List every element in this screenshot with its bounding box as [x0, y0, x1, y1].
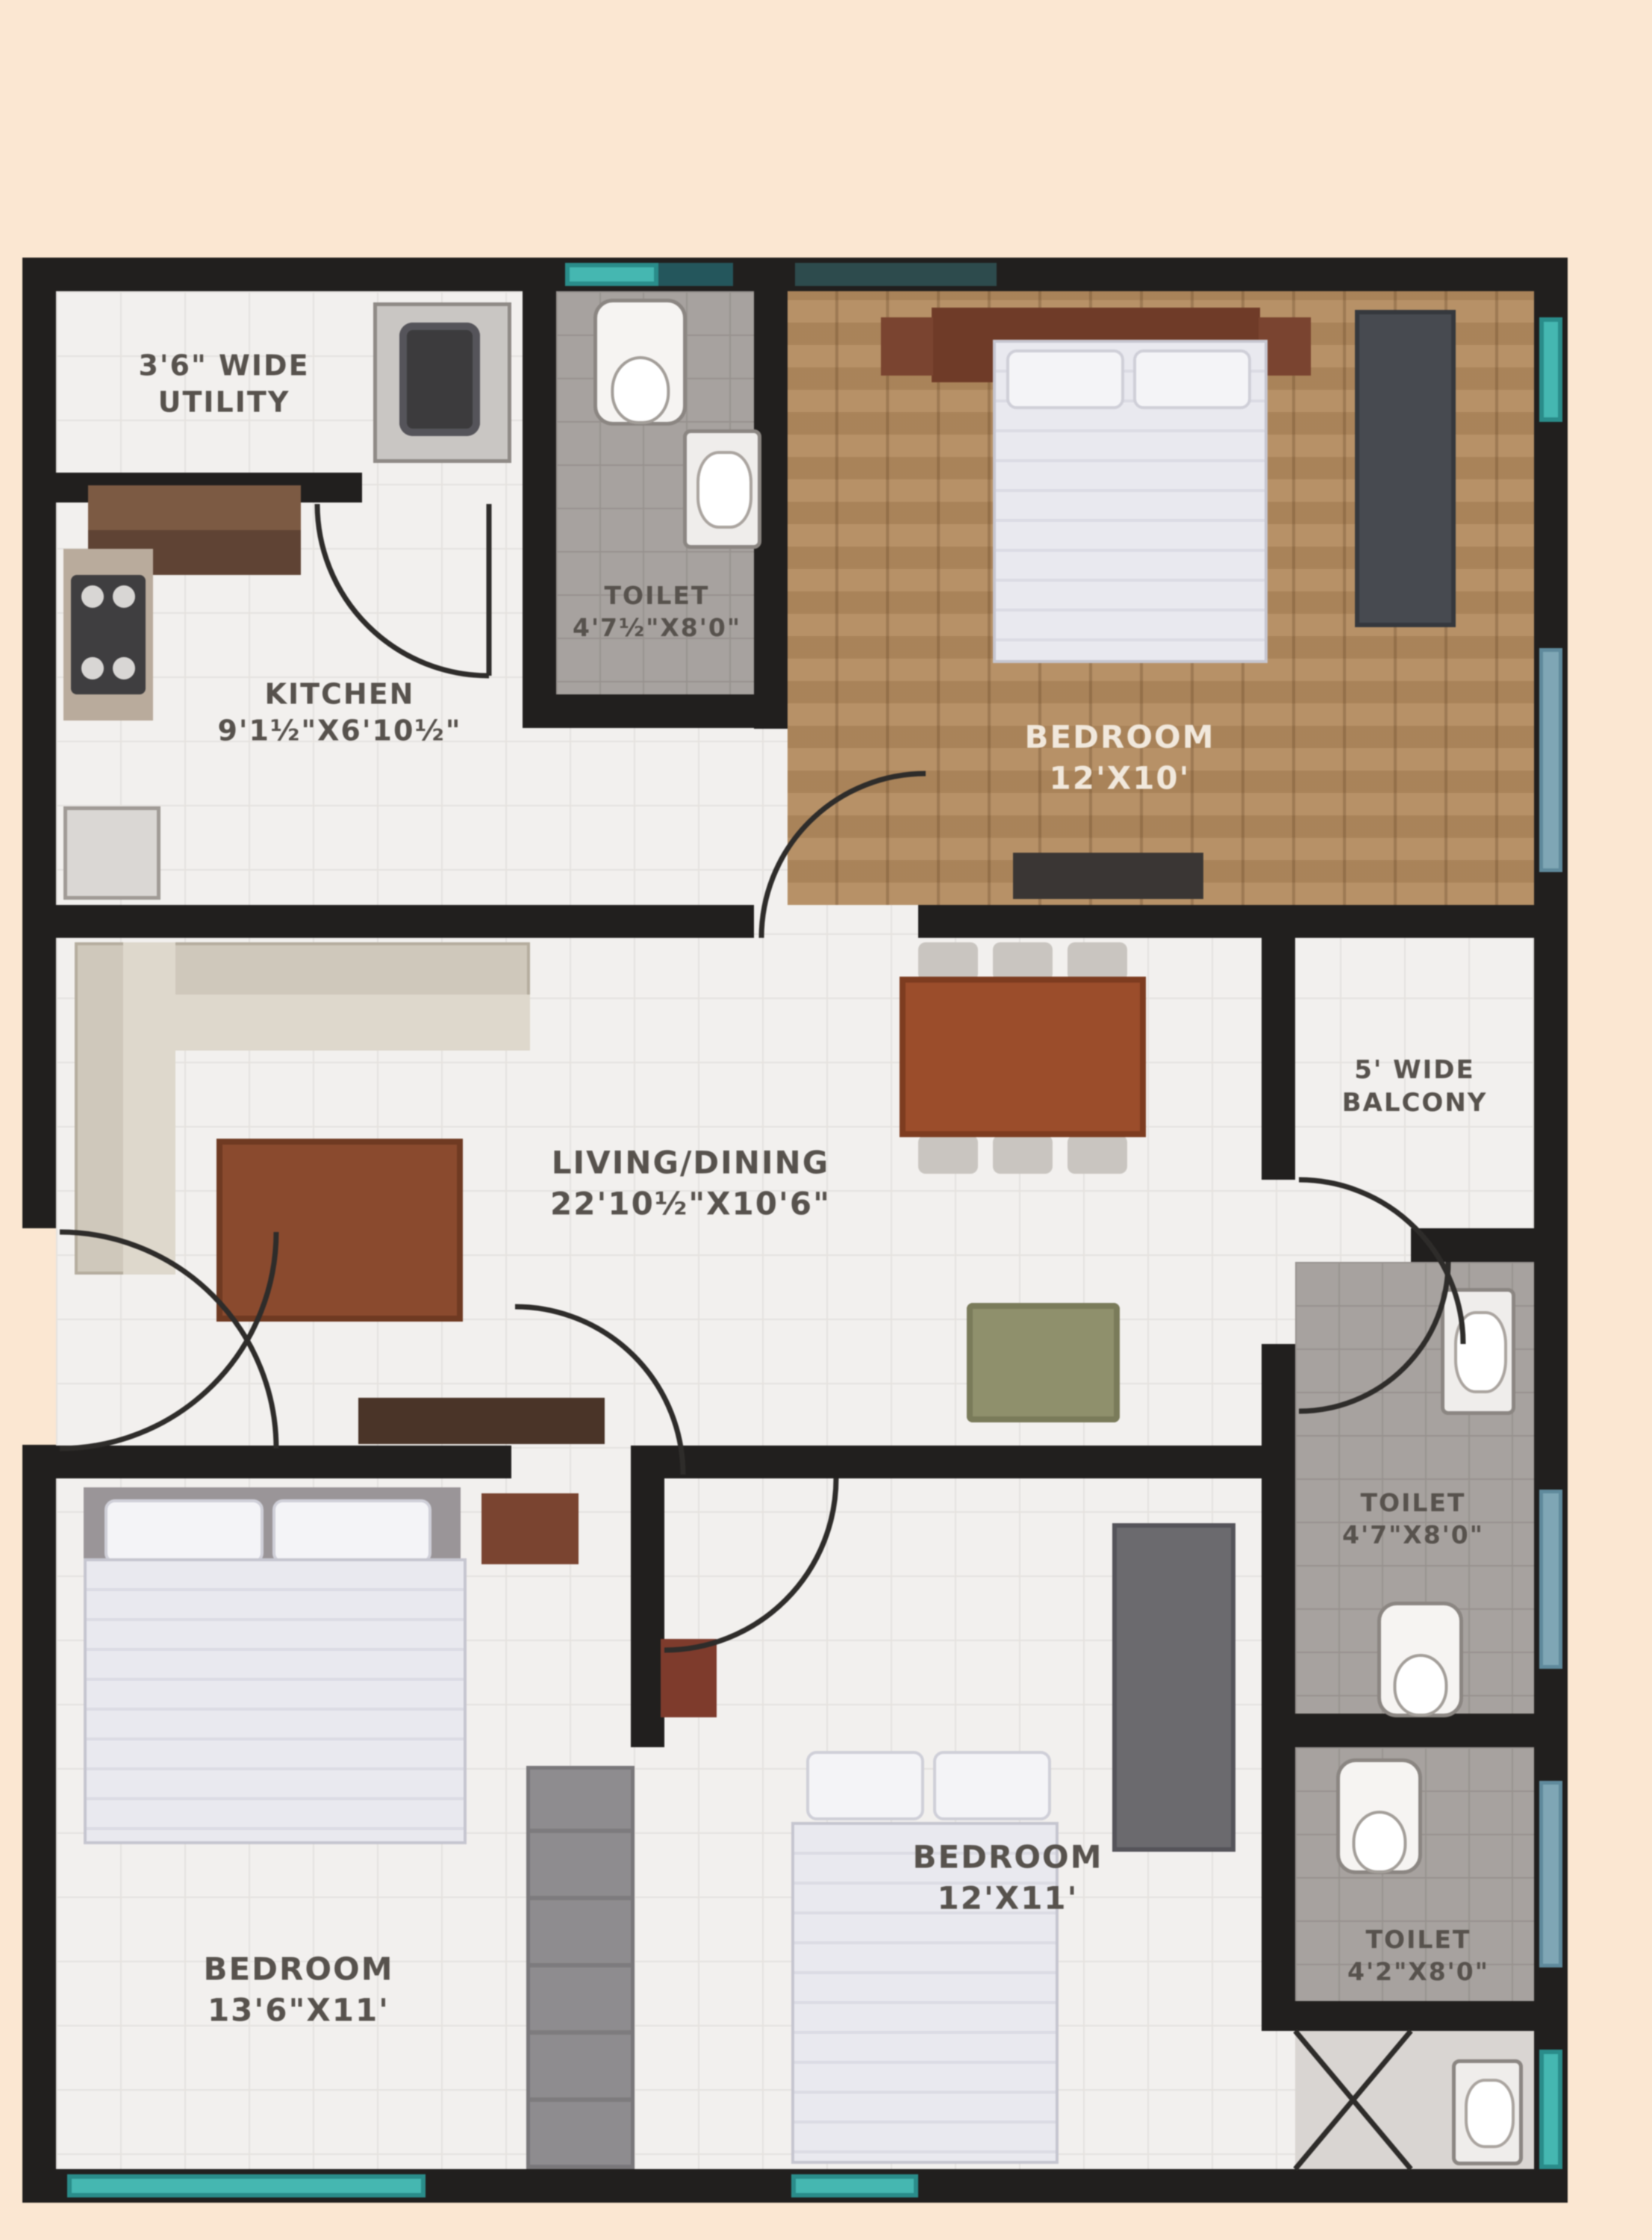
label-bedroom-mid: BEDROOM12'X11': [912, 1837, 1103, 1918]
label-balcony: 5' WIDEBALCONY: [1342, 1054, 1488, 1119]
door-arcs: [0, 0, 1652, 2240]
label-living-dining: LIVING/DINING22'10½"X10'6": [550, 1142, 831, 1224]
floor-plan-page: 3'6" WIDEUTILITY KITCHEN9'1½"X6'10½" TOI…: [0, 0, 1652, 2240]
label-utility: 3'6" WIDEUTILITY: [138, 348, 309, 422]
floor-plan: 3'6" WIDEUTILITY KITCHEN9'1½"X6'10½" TOI…: [0, 0, 1652, 2240]
label-bedroom-master: BEDROOM12'X10': [1024, 717, 1215, 798]
label-toilet-top: TOILET4'7½"X8'0": [573, 580, 741, 644]
label-toilet-right: TOILET4'7"X8'0": [1342, 1487, 1484, 1552]
label-kitchen: KITCHEN9'1½"X6'10½": [217, 676, 461, 750]
label-toilet-bottom: TOILET4'2"X8'0": [1347, 1924, 1489, 1988]
label-bedroom-left: BEDROOM13'6"X11': [203, 1949, 393, 2030]
